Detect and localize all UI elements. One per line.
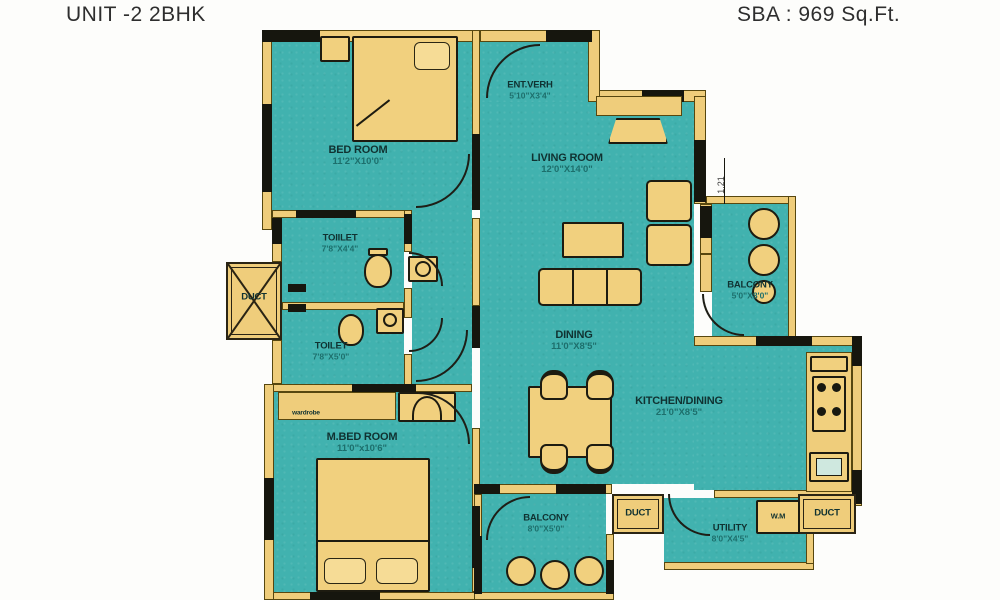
dining-chair-icon — [540, 444, 568, 474]
label-duct-bottom: DUCT — [625, 509, 651, 520]
label-duct-bottom-right: DUCT — [814, 509, 840, 520]
wall-segment — [404, 354, 412, 388]
wall-segment — [664, 562, 814, 570]
wall-segment — [472, 218, 480, 306]
label-utility: UTILITY 8'0"X4'5" — [712, 524, 749, 545]
wall-segment-dark — [472, 134, 480, 210]
sofa-seat-divider — [572, 270, 574, 304]
dining-chair-icon — [586, 370, 614, 400]
planter-icon — [506, 556, 536, 586]
burner-icon — [832, 407, 841, 416]
armchair-icon — [646, 224, 692, 266]
kitchen-shelf-icon — [810, 356, 848, 372]
coffee-table-icon — [562, 222, 624, 258]
label-kitchen: KITCHEN/DINING 21'0"X8'5" — [635, 395, 723, 419]
label-wm: W.M — [771, 513, 785, 522]
wall-segment — [474, 592, 614, 600]
wall-segment-dark — [296, 210, 356, 218]
burner-icon — [817, 383, 826, 392]
tv-icon — [608, 118, 668, 144]
burner-icon — [817, 407, 826, 416]
tv-console-icon — [596, 96, 682, 116]
fixture-marks — [288, 284, 306, 292]
wall-segment-dark — [472, 306, 480, 348]
sba-area-label: SBA : 969 Sq.Ft. — [737, 3, 900, 27]
wall-segment-dark — [474, 484, 500, 494]
balcony-chair-icon — [748, 244, 780, 276]
label-wardrobe: wardrobe — [292, 409, 320, 416]
label-dining: DINING 11'0"X8'5" — [551, 329, 597, 353]
wall-segment — [706, 196, 796, 204]
fixture-marks — [288, 304, 306, 312]
planter-icon — [574, 556, 604, 586]
sofa-icon — [538, 268, 642, 306]
wall-segment-dark — [264, 478, 274, 540]
wall-segment-dark — [404, 214, 412, 244]
wall-segment — [788, 196, 796, 344]
wc-icon — [364, 254, 392, 288]
sofa-seat-divider — [606, 270, 608, 304]
pillow-icon — [376, 558, 418, 584]
label-balcony-bottom: BALCONY 8'0"X5'0" — [523, 514, 569, 535]
wall-segment-dark — [262, 104, 272, 192]
pillow-icon — [414, 42, 450, 70]
floor-plan-canvas: UNIT -2 2BHK SBA : 969 Sq.Ft. — [0, 0, 1000, 600]
wall-segment — [272, 340, 282, 384]
burner-icon — [832, 383, 841, 392]
wall-segment-dark — [756, 336, 812, 346]
dining-chair-icon — [586, 444, 614, 474]
label-balcony-right: BALCONY 5'0"X8'0" — [727, 281, 773, 302]
wall-segment-dark — [310, 592, 380, 600]
blanket-line — [318, 540, 428, 542]
sink-basin — [816, 458, 842, 476]
wall-segment-dark — [606, 560, 614, 594]
label-mbed: M.BED ROOM 11'0"x10'6" — [327, 431, 398, 455]
unit-title: UNIT -2 2BHK — [66, 3, 206, 27]
dimension-value: 1.21 — [716, 176, 726, 194]
pillow-icon — [324, 558, 366, 584]
label-living: LIVING ROOM 12'0"X14'0" — [531, 152, 603, 176]
wall-segment — [700, 254, 712, 292]
planter-icon — [540, 560, 570, 590]
label-entverh: ENT.VERH 5'10"X3'4" — [507, 81, 552, 102]
label-toilet1: TOIILET 7'8"X4'4" — [322, 234, 359, 255]
wall-segment-dark — [700, 206, 712, 238]
wall-segment-dark — [262, 30, 320, 42]
label-bedroom: BED ROOM 11'2"X10'0" — [329, 144, 388, 168]
wall-segment-dark — [556, 484, 606, 494]
bedside-table-icon — [320, 36, 350, 62]
wall-segment-dark — [694, 140, 706, 202]
wall-segment — [404, 288, 412, 318]
dining-chair-icon — [540, 370, 568, 400]
wall-segment-dark — [352, 384, 416, 392]
label-toilet2: TOILET 7'8"X5'0" — [313, 342, 350, 363]
wall-segment-dark — [852, 336, 862, 366]
label-duct-left: DUCT — [241, 293, 267, 304]
washbasin-bowl — [383, 313, 397, 327]
wall-segment-dark — [546, 30, 592, 42]
armchair-icon — [646, 180, 692, 222]
balcony-chair-icon — [748, 208, 780, 240]
wall-segment-dark — [272, 218, 282, 244]
wall-segment-dark — [474, 536, 482, 594]
